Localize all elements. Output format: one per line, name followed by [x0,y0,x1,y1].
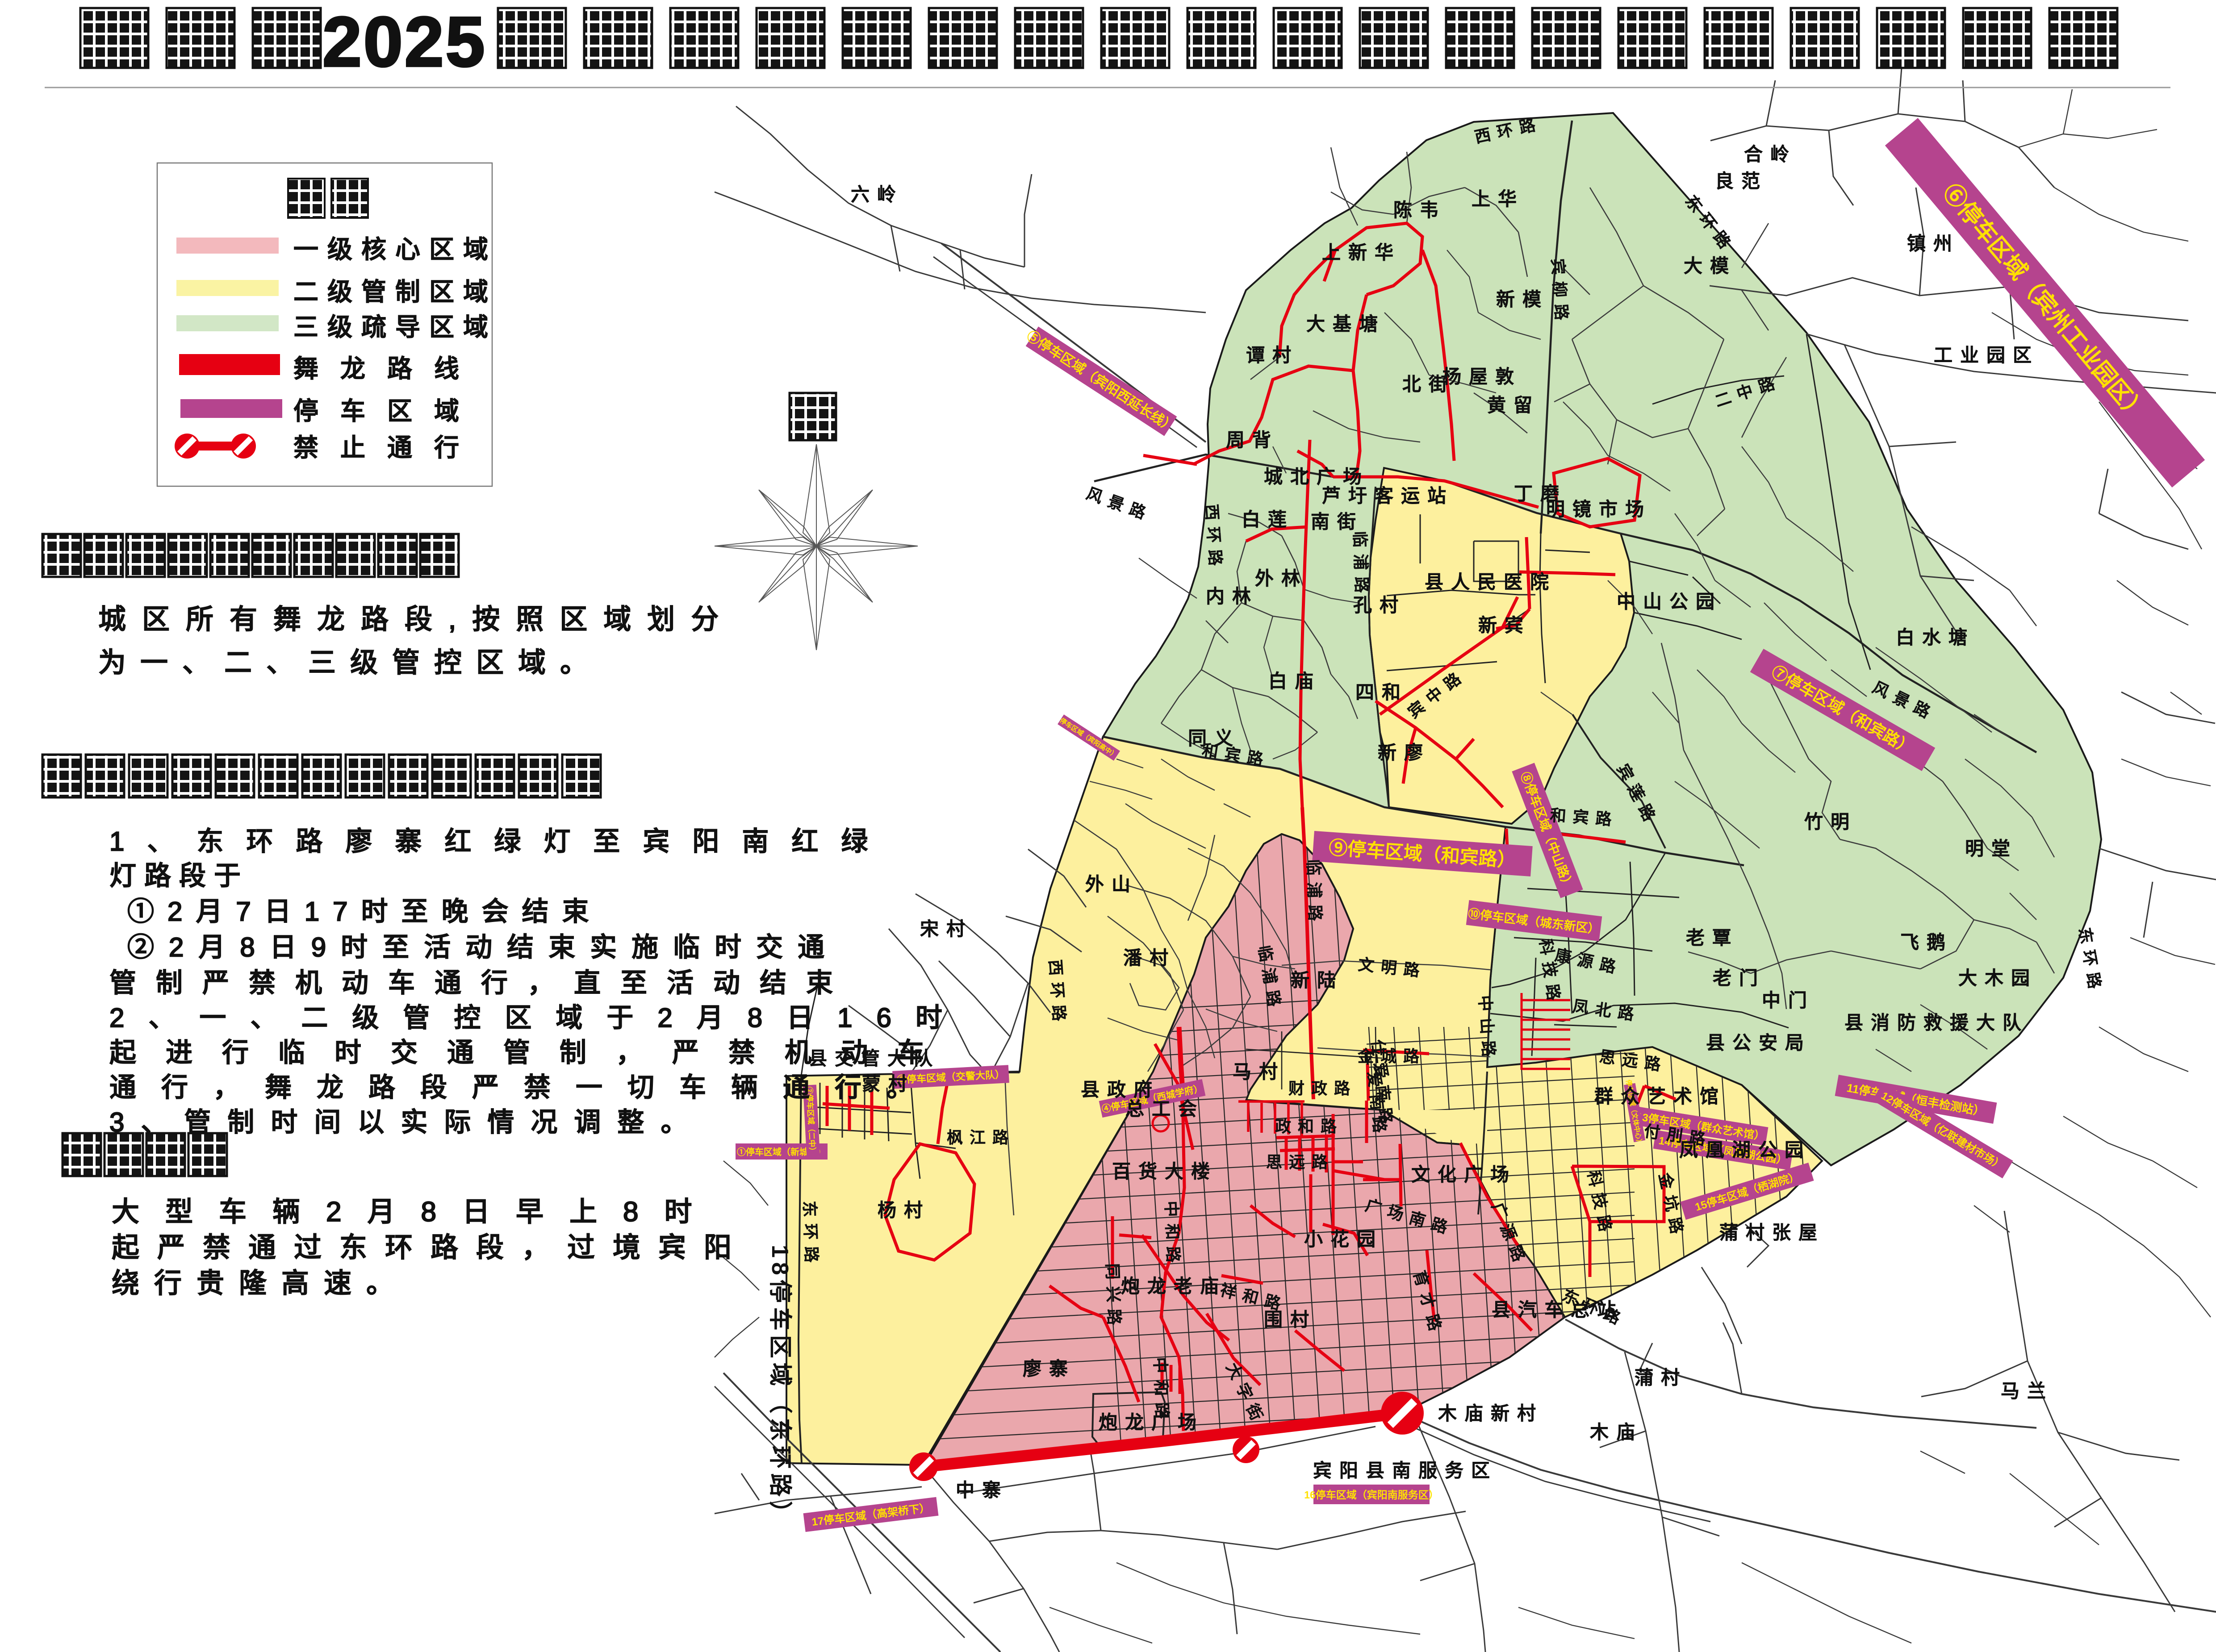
svg-text:马村: 马村 [1233,1061,1285,1082]
svg-text:小花园: 小花园 [1304,1229,1383,1250]
svg-text:中和路: 中和路 [1162,1201,1183,1269]
svg-text:中寨: 中寨 [956,1480,1008,1501]
svg-text:杨村: 杨村 [878,1200,930,1221]
svg-text:一级核心区域: 一级核心区域 [293,235,497,263]
svg-text:县政府: 县政府 [1081,1079,1160,1100]
svg-text:上华: 上华 [1472,188,1524,209]
svg-text:枫江路: 枫江路 [947,1128,1015,1147]
svg-text:宋村: 宋村 [920,918,973,939]
svg-text:老覃: 老覃 [1686,927,1739,948]
svg-text:1、东环路廖寨红绿灯至宾阳南红绿: 1、东环路廖寨红绿灯至宾阳南红绿 [109,826,891,856]
svg-text:凤凰湖公园: 凤凰湖公园 [1679,1139,1811,1160]
svg-text:内林: 内林 [1206,586,1259,607]
svg-text:通行，舞龙路段严禁一切车辆通行。: 通行，舞龙路段严禁一切车辆通行。 [109,1072,938,1102]
svg-text:上新华: 上新华 [1322,242,1401,263]
svg-text:马兰: 马兰 [2001,1381,2053,1402]
svg-text:停车区域: 停车区域 [293,397,481,425]
svg-text:新陆: 新陆 [1291,970,1343,991]
svg-text:文化广场: 文化广场 [1411,1164,1517,1185]
svg-text:黄留: 黄留 [1487,395,1540,416]
svg-text:镇州: 镇州 [1907,233,1960,254]
svg-text:潘村: 潘村 [1123,947,1176,968]
svg-text:炮龙老庙: 炮龙老庙 [1121,1276,1226,1297]
svg-text:禁止通行: 禁止通行 [293,434,481,462]
svg-text:木庙新村: 木庙新村 [1438,1403,1543,1424]
svg-text:围村: 围村 [1264,1309,1317,1330]
svg-text:陈韦: 陈韦 [1393,200,1446,221]
svg-text:管制严禁机动车通行，直至活动结束: 管制严禁机动车通行，直至活动结束 [109,968,853,998]
svg-text:明堂: 明堂 [1965,838,2018,859]
svg-text:良范: 良范 [1715,171,1768,192]
svg-text:二级管制区域: 二级管制区域 [293,278,497,306]
svg-text:竹明: 竹明 [1804,811,1857,832]
svg-text:白庙: 白庙 [1268,671,1321,692]
svg-text:新宾: 新宾 [1478,615,1531,636]
svg-text:2025: 2025 [322,3,487,81]
svg-text:周背: 周背 [1226,430,1279,451]
svg-text:起严禁通过东环路段，过境宾阳: 起严禁通过东环路段，过境宾阳 [112,1232,749,1263]
svg-text:白莲: 白莲 [1242,509,1294,530]
svg-text:政和路: 政和路 [1275,1117,1343,1135]
svg-text:大木园: 大木园 [1958,968,2037,989]
svg-text:合岭: 合岭 [1744,144,1797,165]
svg-text:六岭: 六岭 [851,184,903,205]
svg-text:②2月8日9时至活动结束实施临时交通: ②2月8日9时至活动结束实施临时交通 [127,932,839,962]
svg-text:新廖: 新廖 [1378,742,1430,763]
svg-text:中山公园: 中山公园 [1617,591,1722,612]
svg-text:16停车区域（宾阳南服务区）: 16停车区域（宾阳南服务区） [1304,1489,1439,1501]
svg-text:大型车辆2月8日早上8时: 大型车辆2月8日早上8时 [112,1197,718,1227]
svg-text:大模: 大模 [1684,255,1736,276]
svg-text:外林: 外林 [1255,568,1308,589]
svg-text:飞鹅: 飞鹅 [1900,932,1953,953]
svg-text:群众艺术馆: 群众艺术馆 [1594,1086,1726,1107]
svg-text:舞龙路线: 舞龙路线 [293,355,481,383]
svg-text:城北广场: 城北广场 [1264,466,1369,487]
svg-text:南街: 南街 [1311,511,1363,532]
svg-text:东环路: 东环路 [800,1201,821,1269]
svg-text:为一、二、三级管控区域。: 为一、二、三级管控区域。 [98,647,602,678]
svg-text:灯路段于: 灯路段于 [109,861,249,891]
svg-text:明镜市场: 明镜市场 [1546,499,1652,520]
svg-text:芦圩客运站: 芦圩客运站 [1322,485,1454,506]
svg-text:蒲村张屋: 蒲村张屋 [1719,1222,1825,1243]
svg-text:外山: 外山 [1085,874,1138,895]
svg-text:四和: 四和 [1355,682,1408,703]
svg-text:临浦路: 临浦路 [1351,531,1371,600]
svg-text:临浦路: 临浦路 [1304,859,1325,928]
svg-text:县人民医院: 县人民医院 [1425,572,1556,592]
svg-text:大基塘: 大基塘 [1306,313,1385,334]
svg-text:①2月7日17时至晚会结束: ①2月7日17时至晚会结束 [127,897,602,926]
svg-text:宾阳县南服务区: 宾阳县南服务区 [1313,1460,1497,1481]
svg-text:炮龙广场: 炮龙广场 [1099,1412,1204,1433]
svg-text:白水塘: 白水塘 [1896,627,1975,648]
svg-text:18停车区域（东环路）: 18停车区域（东环路） [767,1245,793,1529]
svg-text:老门: 老门 [1713,968,1765,989]
svg-text:同兴路: 同兴路 [1103,1263,1124,1332]
svg-text:城区所有舞龙路段,按照区域划分: 城区所有舞龙路段,按照区域划分 [98,604,735,635]
svg-text:财政路: 财政路 [1288,1079,1357,1097]
svg-text:起进行临时交通管制，严禁机动车: 起进行临时交通管制，严禁机动车 [109,1038,953,1068]
svg-text:木庙: 木庙 [1590,1422,1643,1443]
svg-text:杨屋敦: 杨屋敦 [1442,366,1522,387]
svg-text:绕行贵隆高速。: 绕行贵隆高速。 [112,1268,409,1299]
svg-text:工业园区: 工业园区 [1934,345,2039,366]
svg-text:县消防救援大队: 县消防救援大队 [1844,1012,2029,1033]
svg-text:蒲村: 蒲村 [1635,1367,1687,1388]
svg-text:新模: 新模 [1496,289,1549,310]
svg-text:2、一、二级管控区域于2月8日16时: 2、一、二级管控区域于2月8日16时 [109,1003,966,1033]
svg-text:县公安局: 县公安局 [1706,1032,1811,1053]
svg-text:廖寨: 廖寨 [1023,1358,1075,1379]
svg-text:思远路: 思远路 [1266,1153,1334,1171]
svg-text:谭村: 谭村 [1246,345,1299,366]
svg-text:百货大楼: 百货大楼 [1112,1161,1217,1182]
svg-text:中门: 中门 [1762,990,1815,1011]
svg-text:总工会: 总工会 [1125,1098,1204,1119]
svg-text:三级疏导区域: 三级疏导区域 [293,313,497,341]
svg-text:孔村: 孔村 [1353,595,1406,616]
